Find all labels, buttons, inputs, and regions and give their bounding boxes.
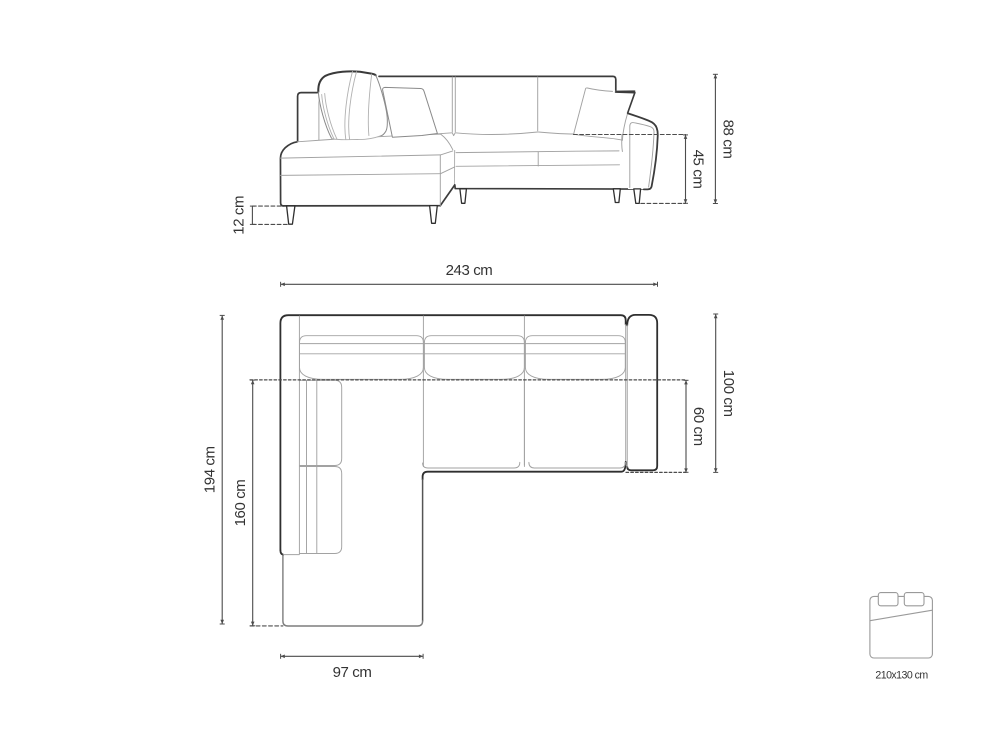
svg-text:12 cm: 12 cm [230, 196, 247, 235]
svg-text:100 cm: 100 cm [720, 370, 737, 417]
svg-text:45 cm: 45 cm [690, 150, 707, 189]
svg-text:60 cm: 60 cm [690, 407, 707, 446]
svg-text:88 cm: 88 cm [720, 120, 737, 159]
svg-text:97 cm: 97 cm [333, 664, 372, 681]
svg-text:243 cm: 243 cm [446, 262, 493, 279]
svg-text:160 cm: 160 cm [232, 480, 249, 527]
svg-text:194 cm: 194 cm [201, 446, 218, 493]
svg-text:210x130 cm: 210x130 cm [875, 670, 928, 682]
